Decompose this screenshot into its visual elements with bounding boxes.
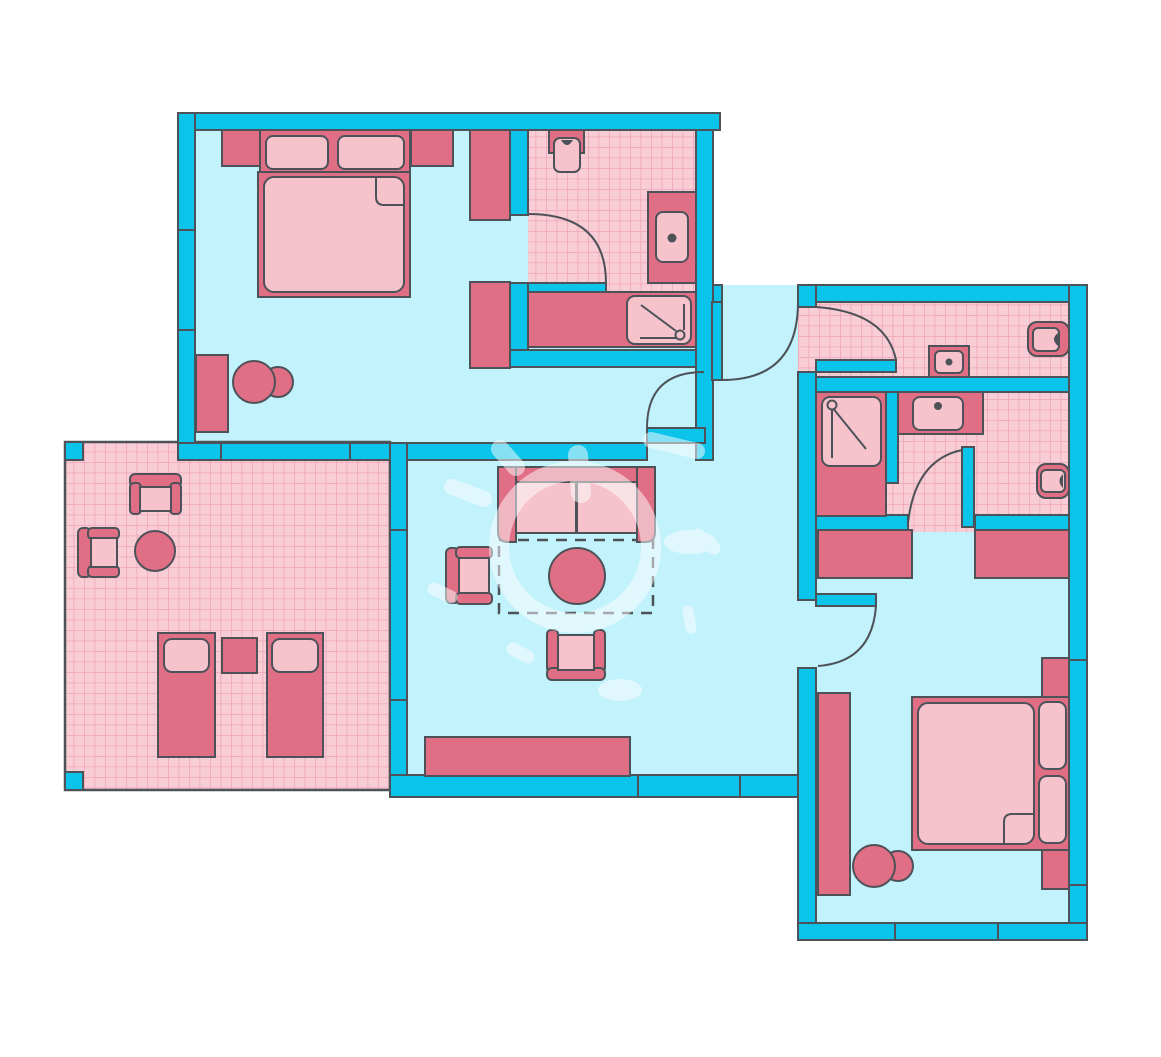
coffee-table-icon xyxy=(549,548,605,604)
tall-wardrobe-icon xyxy=(818,693,850,895)
terrace-post-top-left xyxy=(65,442,83,460)
stool-icon xyxy=(233,361,275,403)
watermark-stroke xyxy=(688,611,691,628)
watermark-stroke xyxy=(434,589,451,597)
watermark-stroke xyxy=(500,449,516,467)
terrace-post-bottom-left xyxy=(65,772,83,790)
door-leaf-bathroomA xyxy=(528,283,606,292)
wall-unitA-left xyxy=(178,113,195,460)
watermark-blob xyxy=(598,679,642,701)
armchair-arm-icon xyxy=(594,630,605,672)
floor-entrance-gap xyxy=(722,285,798,302)
basin-drain-icon xyxy=(934,402,942,410)
watermark-blob xyxy=(664,530,716,554)
wall-apartment-left-a xyxy=(798,285,816,307)
pillow-icon xyxy=(338,136,404,169)
nightstand-icon xyxy=(1042,658,1069,697)
dresser-icon xyxy=(196,355,228,432)
door-leaf-entrance xyxy=(712,302,722,380)
washbasin-icon xyxy=(913,397,963,430)
stool-icon xyxy=(853,845,895,887)
watermark-stroke xyxy=(513,649,528,657)
watermark-stroke xyxy=(578,455,581,493)
wall-apartment-left-c xyxy=(798,668,816,940)
wall-hall-top-stub xyxy=(713,285,722,302)
chair-seat-icon xyxy=(91,538,117,567)
wall-shower-partition xyxy=(886,392,898,483)
mattress-icon xyxy=(918,703,1034,844)
door-leaf-bedroom-right xyxy=(816,594,876,606)
armchair-arm-icon xyxy=(456,547,492,558)
wall-bath2-bedroom-b xyxy=(975,515,1069,530)
wardrobe-icon xyxy=(975,530,1069,578)
nightstand-icon xyxy=(1042,850,1069,889)
wall-bath2-bedroom-a xyxy=(816,515,908,530)
door-leaf-bath-upper xyxy=(816,360,896,372)
wall-bath-divider xyxy=(816,377,1069,392)
sideboard-icon xyxy=(425,737,630,776)
floor-entry-hall xyxy=(713,302,798,460)
wall-unitA-right xyxy=(696,130,713,460)
wall-living-west xyxy=(390,443,407,797)
side-table-icon xyxy=(222,638,257,673)
round-table-icon xyxy=(135,531,175,571)
chair-seat-icon xyxy=(140,487,171,511)
armchair-arm-icon xyxy=(456,593,492,604)
lounger-pillow-icon xyxy=(164,639,209,672)
nightstand-icon xyxy=(411,130,453,166)
shower-drain-icon xyxy=(676,331,685,340)
wardrobe-icon xyxy=(818,530,912,578)
pillow-icon xyxy=(1039,776,1066,843)
wardrobe-icon xyxy=(470,130,510,220)
lounger-pillow-icon xyxy=(272,639,318,672)
wall-apartment-top xyxy=(798,285,1087,302)
wall-bathA-niche-bottom xyxy=(510,350,696,367)
pillow-icon xyxy=(1039,702,1066,769)
pillow-icon xyxy=(266,136,328,169)
wall-living-bottom xyxy=(390,775,798,797)
floor-plan-page xyxy=(0,0,1161,1057)
wall-apartment-right xyxy=(1069,285,1087,940)
wall-apartment-left-b xyxy=(798,372,816,600)
nightstand-icon xyxy=(222,130,260,166)
mattress-icon xyxy=(264,177,404,292)
watermark-stroke xyxy=(651,440,697,451)
floor-plan-drawing xyxy=(0,0,1161,1057)
wall-bathA-partition-upper xyxy=(510,130,528,215)
closet-icon xyxy=(470,282,510,368)
floor-terrace xyxy=(65,442,390,790)
shower-drain-icon xyxy=(828,401,837,410)
watermark-stroke xyxy=(452,487,484,499)
basin-drain-icon xyxy=(668,234,677,243)
wall-unitA-top xyxy=(178,113,720,130)
floor-door-gap-bedroom-right xyxy=(798,600,816,668)
armchair-seat-icon xyxy=(558,635,594,670)
armchair-arm-icon xyxy=(547,630,558,672)
basin-drain-icon xyxy=(946,359,953,366)
floor-bathroom-right-upper-doorway xyxy=(798,307,816,372)
door-leaf-bath-lower xyxy=(962,447,974,527)
armchair-seat-icon xyxy=(459,558,489,593)
wall-apartment-bottom xyxy=(798,923,1087,940)
